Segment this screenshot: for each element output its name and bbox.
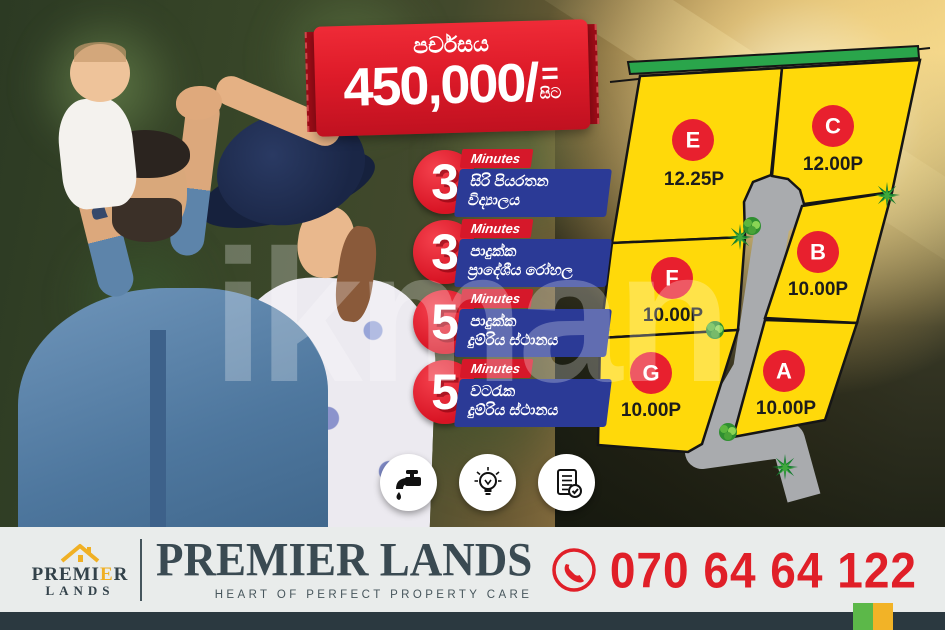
logo-wordmark-bottom: LANDS <box>45 584 114 598</box>
plot-C-size: 12.00P <box>803 154 864 175</box>
corner-green-bar <box>853 603 873 630</box>
minutes-tab: Minutes <box>460 219 534 238</box>
shrub-icon <box>719 423 737 441</box>
premier-lands-logo: PREMIER LANDS <box>32 541 128 598</box>
phone-number: 070 64 64 122 <box>610 540 917 598</box>
shrub-icon <box>706 321 724 339</box>
brand-name: PREMIER LANDS <box>156 537 532 584</box>
logo-premi: PREMI <box>32 564 100 585</box>
plot-C-letter: C <box>825 114 841 139</box>
place-line1: සිරි පියරතන <box>469 173 549 190</box>
minutes-tab: Minutes <box>460 289 534 308</box>
ikman-corner-tag <box>853 603 893 630</box>
baby-hair <box>74 42 126 62</box>
minutes-tab: Minutes <box>460 149 534 168</box>
corner-yellow-bar <box>873 603 893 630</box>
price-from-label: සිට <box>540 86 562 103</box>
plot-A-letter: A <box>776 359 792 384</box>
plot-G-letter: G <box>642 361 659 386</box>
place-line1: වටරැක <box>469 383 516 400</box>
plot-F-size: 10.00P <box>643 305 704 326</box>
land-plot-map: E 12.25P C 12.00P F 10.00P B 10.00P G 10… <box>588 40 940 520</box>
badge-school: 3 Minutes සිරි පියරතන විද්‍යාලය <box>413 148 593 218</box>
logo-divider <box>140 539 142 601</box>
price-row: 450,000/ = සිට <box>343 55 562 115</box>
logo-accent-e: E <box>100 564 114 585</box>
father-body <box>18 288 328 527</box>
badge-number: 5 <box>431 367 459 417</box>
badge-railway-2: 5 Minutes වටරැක දුම්රිය ස්ථානය <box>413 358 593 428</box>
price-suffix: = සිට <box>539 62 562 103</box>
amenity-icons <box>380 454 595 511</box>
price-ribbon: පර්චසය 450,000/ = සිට <box>304 19 599 139</box>
palm-tree-icon <box>874 182 900 208</box>
father-shirt-placket <box>150 330 166 527</box>
plot-F-letter: F <box>665 266 678 291</box>
logo-r: R <box>114 564 129 585</box>
plot-B-letter: B <box>810 240 826 265</box>
light-bulb-icon <box>459 454 516 511</box>
place-line2: විද්‍යාලය <box>467 192 521 209</box>
place-line1: පාදුක්ක <box>469 313 517 330</box>
plot-G-size: 10.00P <box>621 400 682 421</box>
badge-number: 3 <box>431 227 459 277</box>
badge-place-name: පාදුක්ක දුම්රිය ස්ථානය <box>454 309 612 357</box>
footer-band: PREMIER LANDS PREMIER LANDS HEART OF PER… <box>0 527 945 612</box>
land-sale-flyer: පර්චසය 450,000/ = සිට 3 Minutes සිරි පිය… <box>0 0 945 630</box>
palm-tree-icon <box>772 454 798 480</box>
place-line2: දුම්රිය ස්ථානය <box>467 332 559 349</box>
badge-place-name: සිරි පියරතන විද්‍යාලය <box>454 169 612 217</box>
price-amount: 450,000/ <box>343 56 539 115</box>
ribbon-body: පර්චසය 450,000/ = සිට <box>313 19 590 137</box>
badge-place-name: වටරැක දුම්රිය ස්ථානය <box>454 379 612 427</box>
badge-place-name: පාදුක්ක ප්‍රාදේශීය රෝහල <box>454 239 612 287</box>
footer: PREMIER LANDS PREMIER LANDS HEART OF PER… <box>0 527 945 630</box>
plot-A-size: 10.00P <box>756 398 817 419</box>
badge-railway-1: 5 Minutes පාදුක්ක දුම්රිය ස්ථානය <box>413 288 593 358</box>
approved-deed-icon <box>538 454 595 511</box>
phone-icon <box>550 546 598 594</box>
badge-hospital: 3 Minutes පාදුක්ක ප්‍රාදේශීය රෝහල <box>413 218 593 288</box>
distance-badges: 3 Minutes සිරි පියරතන විද්‍යාලය 3 Minute… <box>413 148 593 428</box>
price-equals: = <box>541 62 559 86</box>
phone-block: 070 64 64 122 <box>550 543 917 597</box>
footer-dark-strip <box>0 612 945 630</box>
water-tap-icon <box>380 454 437 511</box>
place-line2: දුම්රිය ස්ථානය <box>467 402 559 419</box>
plot-E-size: 12.25P <box>664 169 725 190</box>
place-line1: පාදුක්ක <box>469 243 517 260</box>
plot-B-size: 10.00P <box>788 279 849 300</box>
plot-E-letter: E <box>686 128 701 153</box>
logo-wordmark-top: PREMIER <box>32 565 129 584</box>
brand-tagline: HEART OF PERFECT PROPERTY CARE <box>215 589 533 601</box>
place-line2: ප්‍රාදේශීය රෝහල <box>467 262 574 279</box>
house-icon <box>54 541 106 565</box>
minutes-tab: Minutes <box>460 359 534 378</box>
shrub-icon <box>743 217 761 235</box>
badge-number: 3 <box>431 157 459 207</box>
brand-block: PREMIER LANDS HEART OF PERFECT PROPERTY … <box>156 538 532 601</box>
badge-number: 5 <box>431 297 459 347</box>
